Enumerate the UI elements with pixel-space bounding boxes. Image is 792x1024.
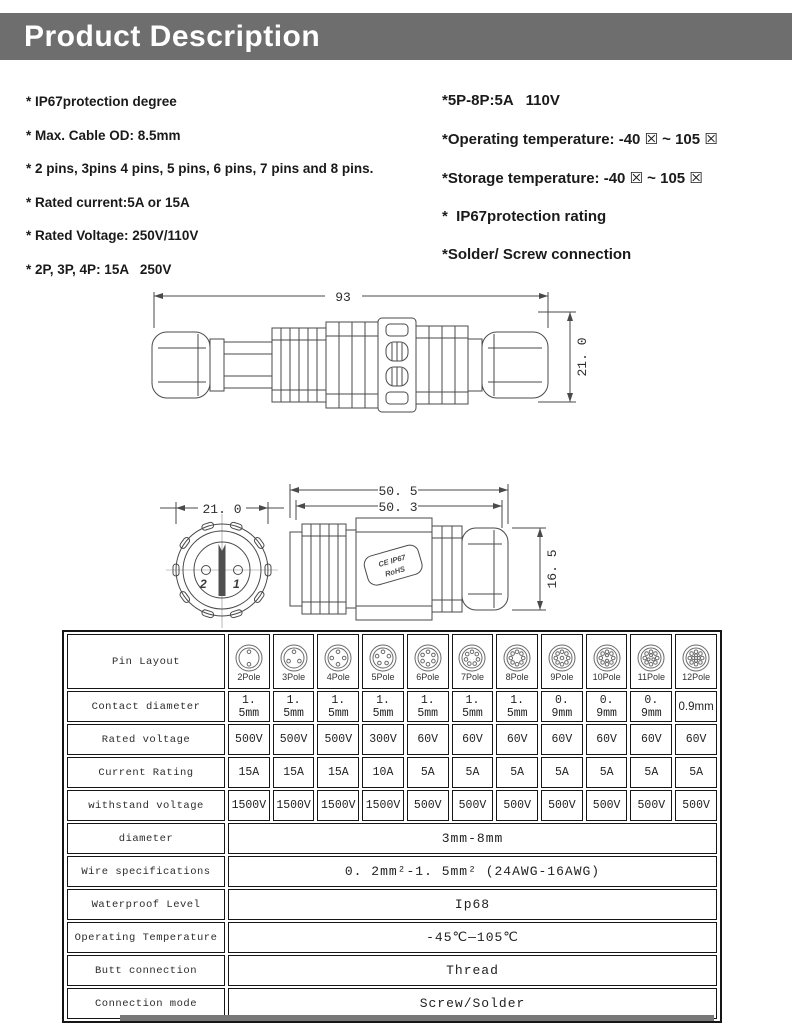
value-cell: 5A: [541, 757, 583, 788]
spec-item: *Storage temperature: -40 ☒ ~ 105 ☒: [442, 169, 787, 187]
value-cell: 0. 9mm: [541, 691, 583, 722]
table-row: Current Rating15A15A15A10A5A5A5A5A5A5A5A: [67, 757, 717, 788]
dim-inner-length: 50. 3: [378, 500, 417, 515]
row-label: Butt connection: [67, 955, 225, 986]
row-label: Waterproof Level: [67, 889, 225, 920]
row-label: withstand voltage: [67, 790, 225, 821]
spec-item: *Solder/ Screw connection: [442, 246, 787, 263]
value-cell: 500V: [452, 790, 494, 821]
table-row: Rated voltage500V500V500V300V60V60V60V60…: [67, 724, 717, 755]
pole-cell: 8Pole: [496, 634, 538, 689]
pole-cell: 12Pole: [675, 634, 717, 689]
row-label: Wire specifications: [67, 856, 225, 887]
row-label: Operating Temperature: [67, 922, 225, 953]
value-cell: 0.9mm: [675, 691, 717, 722]
value-cell: 300V: [362, 724, 404, 755]
table-row: Contact diameter1. 5mm1. 5mm1. 5mm1. 5mm…: [67, 691, 717, 722]
span-value-cell: 3mm-8mm: [228, 823, 717, 854]
value-cell: 60V: [407, 724, 449, 755]
value-cell: 1. 5mm: [496, 691, 538, 722]
spec-item: *Operating temperature: -40 ☒ ~ 105 ☒: [442, 130, 787, 148]
pole-cell: 3Pole: [273, 634, 315, 689]
spec-item: * 2 pins, 3pins 4 pins, 5 pins, 6 pins, …: [26, 161, 431, 176]
value-cell: 1500V: [362, 790, 404, 821]
value-cell: 1. 5mm: [228, 691, 270, 722]
pole-icon: [547, 643, 577, 673]
connector-front-and-plug-drawing: 21. 0 2 1 50. 5 50. 3 CE IP67: [150, 478, 570, 630]
value-cell: 1. 5mm: [317, 691, 359, 722]
pole-icon: [681, 643, 711, 673]
value-cell: 5A: [630, 757, 672, 788]
dim-plug-height: 16. 5: [545, 549, 560, 588]
value-cell: 60V: [630, 724, 672, 755]
pole-label: 9Pole: [543, 672, 581, 682]
value-cell: 15A: [317, 757, 359, 788]
dim-length-93: 93: [335, 290, 351, 305]
spec-item: * IP67protection degree: [26, 94, 431, 109]
value-cell: 500V: [407, 790, 449, 821]
value-cell: 500V: [675, 790, 717, 821]
value-cell: 500V: [586, 790, 628, 821]
spec-item: *5P-8P:5A 110V: [442, 92, 787, 109]
pole-cell: 10Pole: [586, 634, 628, 689]
pole-label: 7Pole: [454, 672, 492, 682]
section-banner: Product Description: [0, 13, 792, 60]
pole-icon: [279, 643, 309, 673]
value-cell: 500V: [228, 724, 270, 755]
table-row: Operating Temperature-45℃—105℃: [67, 922, 717, 953]
pole-label: 5Pole: [364, 672, 402, 682]
connector-side-view-drawing: 93 21. 0: [140, 282, 610, 422]
value-cell: 0. 9mm: [586, 691, 628, 722]
spec-table: Pin Layout2Pole3Pole4Pole5Pole6Pole7Pole…: [62, 630, 722, 1023]
key-bar: [219, 544, 226, 596]
pole-icon: [457, 643, 487, 673]
value-cell: 60V: [675, 724, 717, 755]
pole-icon: [502, 643, 532, 673]
pole-label: 11Pole: [632, 672, 670, 682]
pole-label: 10Pole: [588, 672, 626, 682]
pole-label: 4Pole: [319, 672, 357, 682]
table-row: Pin Layout2Pole3Pole4Pole5Pole6Pole7Pole…: [67, 634, 717, 689]
value-cell: 5A: [675, 757, 717, 788]
pole-icon: [323, 643, 353, 673]
pole-cell: 5Pole: [362, 634, 404, 689]
value-cell: 500V: [630, 790, 672, 821]
pole-label: 2Pole: [230, 672, 268, 682]
span-value-cell: Thread: [228, 955, 717, 986]
value-cell: 1500V: [228, 790, 270, 821]
spec-item: * IP67protection rating: [442, 208, 787, 225]
value-cell: 1500V: [317, 790, 359, 821]
value-cell: 60V: [452, 724, 494, 755]
span-value-cell: 0. 2mm²-1. 5mm² (24AWG-16AWG): [228, 856, 717, 887]
value-cell: 5A: [452, 757, 494, 788]
pole-label: 12Pole: [677, 672, 715, 682]
value-cell: 5A: [407, 757, 449, 788]
next-section-edge: [120, 1015, 714, 1021]
pin-label-1: 1: [233, 577, 240, 591]
value-cell: 5A: [586, 757, 628, 788]
value-cell: 0. 9mm: [630, 691, 672, 722]
table-row: withstand voltage1500V1500V1500V1500V500…: [67, 790, 717, 821]
pole-label: 3Pole: [275, 672, 313, 682]
spec-table-wrap: Pin Layout2Pole3Pole4Pole5Pole6Pole7Pole…: [62, 630, 722, 1023]
pole-icon: [636, 643, 666, 673]
value-cell: 15A: [273, 757, 315, 788]
pole-cell: 7Pole: [452, 634, 494, 689]
pole-icon: [592, 643, 622, 673]
pole-label: 8Pole: [498, 672, 536, 682]
table-row: Butt connectionThread: [67, 955, 717, 986]
row-label: diameter: [67, 823, 225, 854]
pole-cell: 4Pole: [317, 634, 359, 689]
row-label: Pin Layout: [67, 634, 225, 689]
table-row: diameter3mm-8mm: [67, 823, 717, 854]
value-cell: 60V: [541, 724, 583, 755]
value-cell: 500V: [541, 790, 583, 821]
value-cell: 15A: [228, 757, 270, 788]
spec-item: * Max. Cable OD: 8.5mm: [26, 128, 431, 143]
pole-cell: 11Pole: [630, 634, 672, 689]
pin-label-2: 2: [199, 577, 207, 591]
pole-cell: 6Pole: [407, 634, 449, 689]
value-cell: 1. 5mm: [362, 691, 404, 722]
row-label: Current Rating: [67, 757, 225, 788]
spec-item: * Rated Voltage: 250V/110V: [26, 228, 431, 243]
pole-label: 6Pole: [409, 672, 447, 682]
value-cell: 500V: [273, 724, 315, 755]
dim-outer-length: 50. 5: [378, 484, 417, 499]
row-label: Rated voltage: [67, 724, 225, 755]
value-cell: 5A: [496, 757, 538, 788]
value-cell: 1. 5mm: [452, 691, 494, 722]
pole-cell: 2Pole: [228, 634, 270, 689]
table-row: Wire specifications0. 2mm²-1. 5mm² (24AW…: [67, 856, 717, 887]
span-value-cell: Ip68: [228, 889, 717, 920]
value-cell: 60V: [496, 724, 538, 755]
value-cell: 60V: [586, 724, 628, 755]
row-label: Contact diameter: [67, 691, 225, 722]
value-cell: 500V: [496, 790, 538, 821]
pole-icon: [368, 643, 398, 673]
value-cell: 10A: [362, 757, 404, 788]
value-cell: 1. 5mm: [273, 691, 315, 722]
spec-item: * 2P, 3P, 4P: 15A 250V: [26, 262, 431, 277]
page-title: Product Description: [24, 20, 320, 54]
table-row: Waterproof LevelIp68: [67, 889, 717, 920]
spec-item: * Rated current:5A or 15A: [26, 195, 431, 210]
spec-list-left: * IP67protection degree * Max. Cable OD:…: [26, 94, 431, 295]
value-cell: 1. 5mm: [407, 691, 449, 722]
value-cell: 500V: [317, 724, 359, 755]
value-cell: 1500V: [273, 790, 315, 821]
span-value-cell: -45℃—105℃: [228, 922, 717, 953]
dim-height-21: 21. 0: [575, 337, 590, 376]
spec-list-right: *5P-8P:5A 110V *Operating temperature: -…: [442, 92, 787, 284]
pole-icon: [413, 643, 443, 673]
pole-cell: 9Pole: [541, 634, 583, 689]
pole-icon: [234, 643, 264, 673]
